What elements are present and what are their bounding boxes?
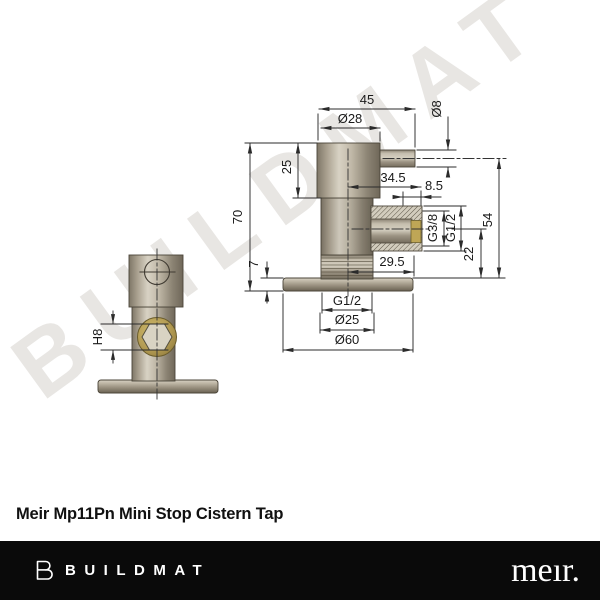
dim-label-outlet-thread-large: G1/2 <box>443 214 458 242</box>
dim-label-outlet-reach: 34.5 <box>380 170 405 185</box>
dim-label-outlet-height: 22 <box>461 247 476 261</box>
buildmat-icon <box>32 558 55 583</box>
dim-label-body-diameter: Ø28 <box>338 111 363 126</box>
meir-logo: meır. <box>511 554 580 588</box>
product-title: Meir Mp11Pn Mini Stop Cistern Tap <box>16 505 576 524</box>
buildmat-logo: BUILDMAT <box>32 558 210 583</box>
side-upper-body <box>317 143 380 198</box>
dim-label-outlet-face-offset: 29.5 <box>379 254 404 269</box>
page: BUILDMAT H8 <box>0 0 600 600</box>
front-upper-cap <box>129 255 183 307</box>
inlet-thread <box>321 255 373 279</box>
dim-label-inlet-diameter: Ø25 <box>335 312 360 327</box>
dim-label-overall-width: 45 <box>360 92 374 107</box>
outlet-bore <box>371 219 412 243</box>
dim-label-spigot-diameter: Ø8 <box>429 100 444 117</box>
outlet <box>371 206 422 251</box>
buildmat-wordmark: BUILDMAT <box>65 562 210 579</box>
dim-label-spigot-height: 54 <box>480 213 495 227</box>
dim-label-upper-body-height: 25 <box>279 160 294 174</box>
dim-label-outlet-thread-small: G3/8 <box>425 214 440 242</box>
side-lower-body-shade <box>321 198 373 255</box>
dim-label-inlet-thread: G1/2 <box>333 293 361 308</box>
technical-drawing: BUILDMAT H8 <box>0 0 600 541</box>
footer-bar: BUILDMAT meır. <box>0 541 600 600</box>
dim-label-hex-socket: H8 <box>90 329 105 346</box>
dim-label-overall-height: 70 <box>230 210 245 224</box>
outlet-brass-seat <box>411 221 421 243</box>
dim-label-flange-thickness: 7 <box>246 260 261 267</box>
dim-label-flange-diameter: Ø60 <box>335 332 360 347</box>
watermark-text: BUILDMAT <box>0 0 567 418</box>
dim-label-outlet-thread-length: 8.5 <box>425 178 443 193</box>
front-flange <box>98 380 218 393</box>
